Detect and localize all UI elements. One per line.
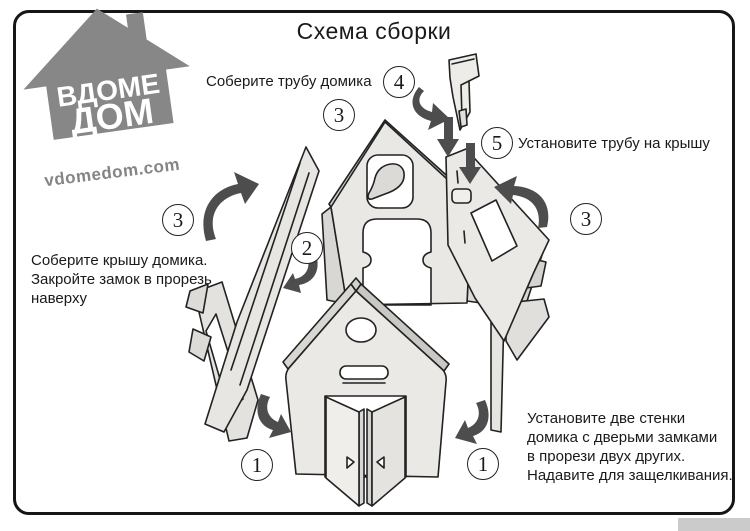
step-badge-1-right: 1 bbox=[467, 448, 499, 480]
door-leaf-right bbox=[372, 397, 405, 506]
instruction-line: Установите две стенки bbox=[527, 409, 733, 428]
step-badge-1-left: 1 bbox=[241, 449, 273, 481]
front-wall-doors-drawing bbox=[283, 278, 449, 506]
oval-window-cutout bbox=[346, 318, 376, 342]
curved-arrow-icon bbox=[455, 400, 489, 444]
house-logo-icon: ВДОМЕ ДОМ bbox=[9, 0, 201, 153]
instruction-line: Надавите для защелкивания. bbox=[527, 466, 733, 485]
curved-arrow-icon bbox=[257, 394, 291, 438]
step-badge-5: 5 bbox=[481, 127, 513, 159]
instruction-install-walls: Установите две стенки домика с дверьми з… bbox=[527, 409, 733, 485]
door-leaf-left bbox=[326, 397, 359, 506]
curved-arrow-icon bbox=[203, 172, 259, 241]
instruction-line: в прорези двух других. bbox=[527, 447, 733, 466]
instruction-line: Закройте замок в прорезь bbox=[31, 270, 212, 289]
chimney-part-drawing bbox=[449, 54, 479, 130]
step-badge-2: 2 bbox=[291, 232, 323, 264]
step-badge-3-left: 3 bbox=[162, 204, 194, 236]
step-badge-3-top: 3 bbox=[323, 99, 355, 131]
instruction-install-chimney: Установите трубу на крышу bbox=[518, 134, 710, 153]
instruction-assemble-chimney: Соберите трубу домика bbox=[206, 72, 372, 91]
instruction-line: домика с дверьми замками bbox=[527, 428, 733, 447]
step-badge-3-right: 3 bbox=[570, 203, 602, 235]
instruction-assemble-roof: Соберите крышу домика. Закройте замок в … bbox=[31, 251, 212, 308]
slot-cutout bbox=[340, 366, 388, 379]
instruction-line: Соберите крышу домика. bbox=[31, 251, 212, 270]
instruction-line: наверху bbox=[31, 289, 212, 308]
step-badge-4: 4 bbox=[383, 66, 415, 98]
